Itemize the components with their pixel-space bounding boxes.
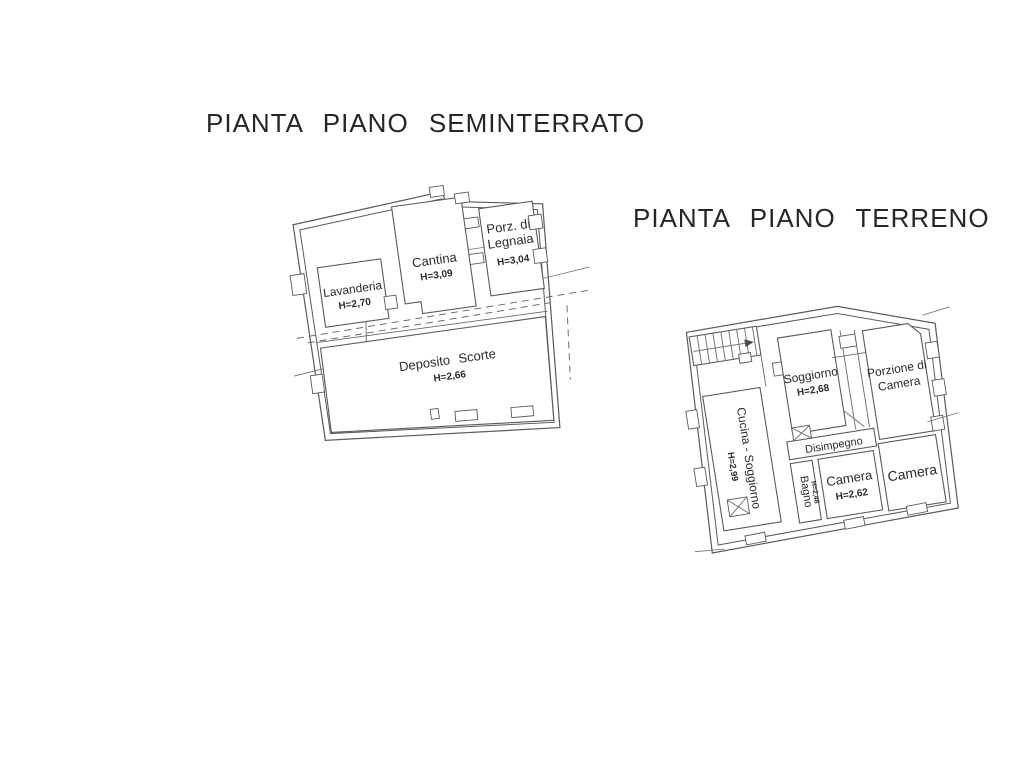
window-symbol — [932, 379, 946, 397]
window-symbol — [533, 248, 548, 264]
window-cross-symbol — [727, 497, 749, 517]
wall-notch — [430, 408, 439, 419]
door-opening — [839, 334, 857, 348]
room-camera-2: Camera — [878, 435, 946, 511]
section-dashed-line — [560, 305, 577, 379]
door-opening — [469, 253, 484, 265]
floor-plan-terreno: Cucina - Soggiorno H=2,99 Soggiorno H=2,… — [650, 280, 1024, 580]
window-symbol — [511, 406, 534, 418]
door-opening — [464, 217, 479, 229]
page: { "seminterrato": { "title": "PIANTA PIA… — [0, 0, 1024, 768]
window-symbol — [454, 192, 469, 204]
title-piano-terreno: PIANTA PIANO TERRENO — [633, 203, 990, 234]
window-symbol — [686, 410, 700, 429]
room-lavanderia: Lavanderia H=2,70 — [317, 259, 389, 327]
window-symbol — [694, 467, 708, 486]
title-piano-seminterrato: PIANTA PIANO SEMINTERRATO — [206, 108, 645, 139]
window-symbol — [290, 274, 307, 296]
floor-plan-seminterrato: Lavanderia H=2,70 Cantina H=3,09 Porz. d… — [266, 166, 602, 466]
door-opening — [384, 295, 398, 310]
room-camera-1: Camera H=2,62 — [818, 451, 883, 519]
window-symbol — [310, 374, 324, 393]
window-cross-symbol — [792, 425, 812, 441]
window-symbol — [429, 185, 444, 197]
window-symbol — [528, 214, 543, 230]
door-opening — [739, 353, 752, 364]
window-symbol — [925, 341, 939, 359]
window-symbol — [455, 410, 478, 422]
room-cantina: Cantina H=3,09 — [392, 197, 477, 316]
